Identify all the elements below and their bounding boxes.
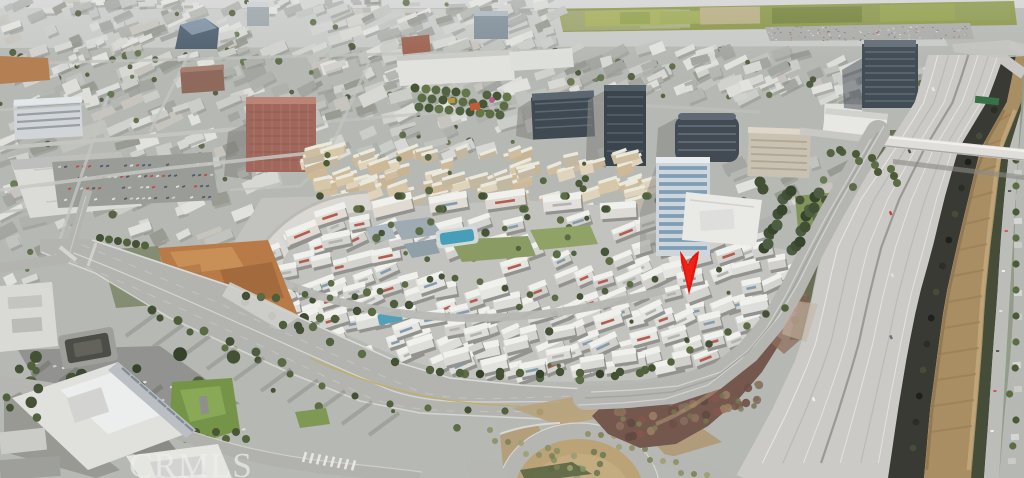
svg-text:CRMLS: CRMLS (129, 446, 253, 478)
